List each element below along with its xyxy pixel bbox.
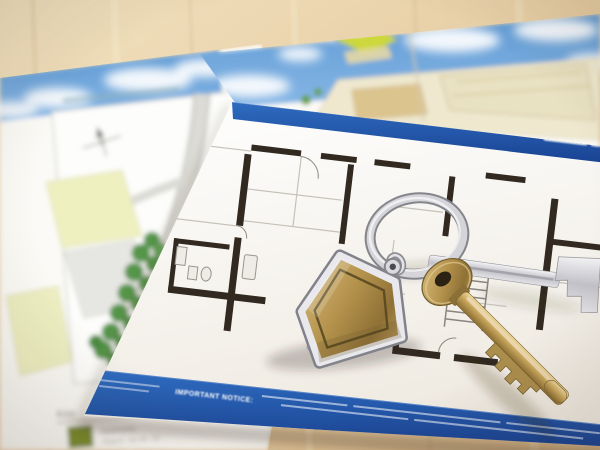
vignette [0,0,600,450]
photo-floor-plans-and-keys: Key Apartments Plots 9 - 13, 20 - 24 [0,0,600,450]
